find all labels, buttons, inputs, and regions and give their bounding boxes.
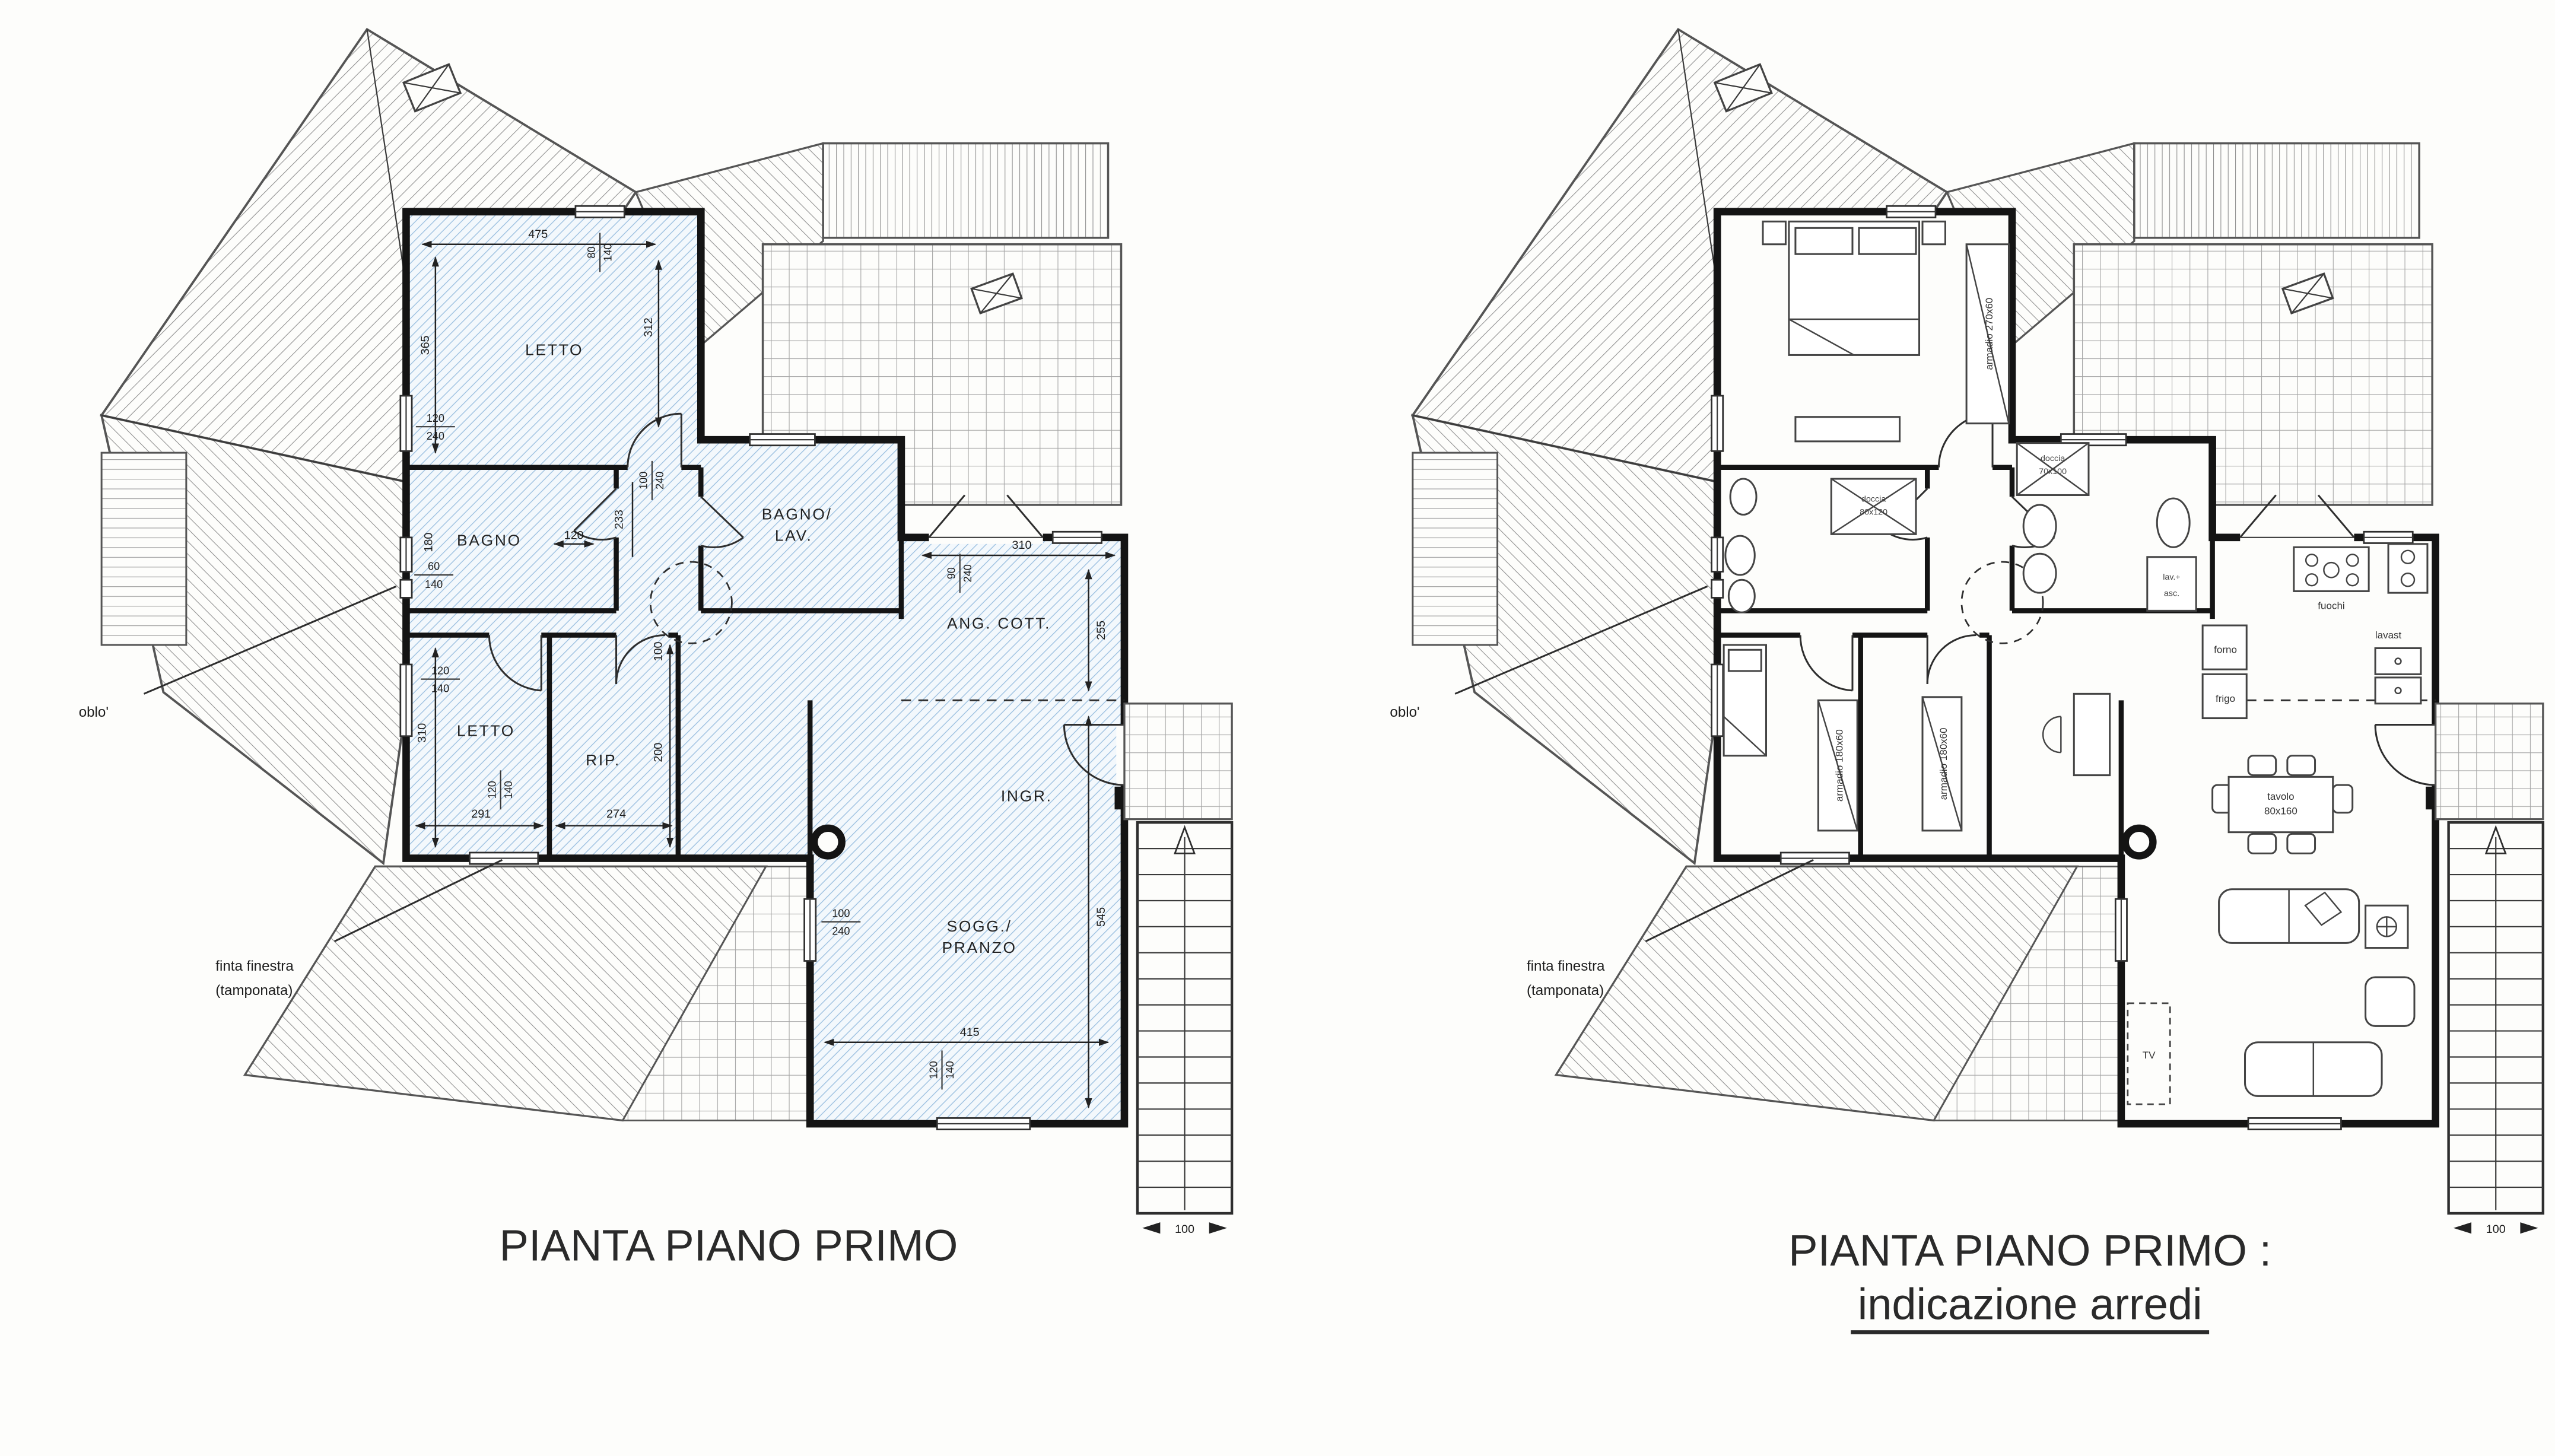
right-title-line2: indicazione arredi xyxy=(1858,1279,2203,1328)
dresser xyxy=(1796,417,1900,441)
dim-sogg-height: 545 xyxy=(1095,907,1108,927)
dim-stair-width: 100 xyxy=(2486,1223,2506,1236)
svg-text:140: 140 xyxy=(944,1061,956,1079)
label-finta-1: finta finestra xyxy=(215,958,294,974)
room-letto1: LETTO xyxy=(525,341,583,358)
room-bagno: BAGNO xyxy=(457,532,522,549)
shower-lav: doccia 70x100 xyxy=(2017,443,2089,495)
room-letto2: LETTO xyxy=(457,722,515,740)
svg-text:70x100: 70x100 xyxy=(2039,467,2067,476)
svg-text:60: 60 xyxy=(428,561,440,573)
svg-text:140: 140 xyxy=(425,578,443,590)
label-oblo: oblo' xyxy=(1390,704,1419,720)
svg-text:armadio 180x60: armadio 180x60 xyxy=(1938,727,1949,800)
dim-top-window-w: 80 xyxy=(586,246,598,258)
single-bed xyxy=(1724,645,1766,756)
dim-sogg-width: 415 xyxy=(960,1026,980,1039)
svg-text:asc.: asc. xyxy=(2164,589,2179,599)
svg-text:80x160: 80x160 xyxy=(2264,805,2297,816)
svg-text:90: 90 xyxy=(945,567,957,579)
svg-text:forno: forno xyxy=(2214,644,2237,656)
svg-text:frigo: frigo xyxy=(2216,693,2235,704)
sofa xyxy=(2219,889,2359,943)
label-finta-2: (tamponata) xyxy=(215,983,293,999)
nightstand xyxy=(1922,221,1945,244)
fridge-frigo: frigo xyxy=(2203,674,2246,718)
dim-hall-door: 120 xyxy=(564,529,584,542)
svg-text:120: 120 xyxy=(431,665,449,676)
bidet-icon xyxy=(1728,580,1755,612)
wardrobe-letto2: armadio 180x60 xyxy=(1818,700,1857,831)
wardrobe-letto1: armadio 270x60 xyxy=(1966,244,2009,424)
sofa xyxy=(2245,1042,2382,1096)
svg-text:doccia: doccia xyxy=(1861,494,1886,504)
washer-dryer: lav.+ asc. xyxy=(2147,557,2196,611)
svg-text:140: 140 xyxy=(503,781,514,799)
label-oblo: oblo' xyxy=(79,704,109,720)
label-finta-1: finta finestra xyxy=(1527,958,1605,974)
kitchen-sink xyxy=(2388,544,2427,593)
toilet-icon xyxy=(1725,536,1755,575)
svg-text:tavolo: tavolo xyxy=(2267,791,2294,802)
dim-top-width: 475 xyxy=(528,228,548,241)
wardrobe-studio: armadio 180x60 xyxy=(1922,697,1962,831)
dim-hall-width: 100 xyxy=(652,641,665,661)
washbasin-icon xyxy=(2157,498,2189,547)
dim-letto2-width: 291 xyxy=(471,808,491,821)
dim-rip-width: 274 xyxy=(606,808,626,821)
dim-cott-width: 310 xyxy=(1012,539,1032,552)
room-ingr: INGR. xyxy=(1001,787,1053,805)
scanned-floor-plan-sheet: 475 80140 365 312 120240 180 60140 120 2… xyxy=(0,0,2555,1456)
room-sogg-1: SOGG./ xyxy=(947,917,1012,935)
left-plan: 475 80140 365 312 120240 180 60140 120 2… xyxy=(79,29,1232,1270)
dim-terrace-height: 312 xyxy=(642,317,655,337)
dim-hall-length: 233 xyxy=(613,510,626,529)
room-bagno-lav-2: LAV. xyxy=(775,526,813,544)
svg-text:120: 120 xyxy=(927,1061,939,1079)
room-rip: RIP. xyxy=(586,751,621,769)
right-plan-title: PIANTA PIANO PRIMO : indicazione arredi xyxy=(1788,1226,2271,1333)
side-table xyxy=(2366,905,2408,948)
room-bagno-lav-1: BAGNO/ xyxy=(762,506,832,523)
svg-text:140: 140 xyxy=(431,683,449,695)
washbasin-icon xyxy=(1730,479,1756,514)
svg-text:armadio 180x60: armadio 180x60 xyxy=(1834,729,1845,802)
dim-letto1-height: 365 xyxy=(419,335,432,355)
svg-text:TV: TV xyxy=(2143,1050,2156,1061)
dim-rip-height: 200 xyxy=(652,743,665,762)
svg-text:100: 100 xyxy=(832,907,850,919)
toilet-icon xyxy=(2023,505,2056,547)
double-bed xyxy=(1789,221,1920,355)
svg-text:armadio 270x60: armadio 270x60 xyxy=(1984,298,1995,370)
right-title-line1: PIANTA PIANO PRIMO : xyxy=(1788,1226,2271,1275)
right-plan: armadio 270x60 doccia 80x120 doccia 70x1… xyxy=(1390,29,2543,1332)
svg-text:fuochi: fuochi xyxy=(2318,600,2344,612)
floor-plan-drawing: 475 80140 365 312 120240 180 60140 120 2… xyxy=(0,0,2555,1456)
svg-text:240: 240 xyxy=(654,472,666,489)
left-plan-title: PIANTA PIANO PRIMO xyxy=(500,1221,958,1270)
svg-text:lav.+: lav.+ xyxy=(2163,573,2180,582)
dim-letto2-height: 310 xyxy=(415,723,428,743)
dim-cott-height: 255 xyxy=(1095,621,1108,640)
svg-text:lavast: lavast xyxy=(2375,630,2402,641)
label-finta-2: (tamponata) xyxy=(1527,983,1604,999)
svg-text:80x120: 80x120 xyxy=(1860,507,1887,517)
nightstand xyxy=(1763,221,1785,244)
svg-text:doccia: doccia xyxy=(2041,454,2065,463)
oven-forno: forno xyxy=(2203,625,2246,669)
room-ang-cott: ANG. COTT. xyxy=(947,615,1051,632)
room-sogg-2: PRANZO xyxy=(942,939,1017,956)
svg-text:120: 120 xyxy=(427,412,444,424)
svg-text:100: 100 xyxy=(638,472,650,489)
svg-text:240: 240 xyxy=(962,564,974,582)
svg-text:120: 120 xyxy=(486,781,498,799)
dim-top-window-h: 140 xyxy=(602,243,614,261)
dim-stair-width: 100 xyxy=(1175,1223,1194,1236)
armchair xyxy=(2366,977,2414,1026)
dim-bagno-height: 180 xyxy=(422,533,435,552)
shower-bagno: doccia 80x120 xyxy=(1831,479,1916,534)
bidet-icon xyxy=(2023,554,2056,593)
svg-text:240: 240 xyxy=(832,926,850,937)
svg-text:240: 240 xyxy=(427,430,444,442)
